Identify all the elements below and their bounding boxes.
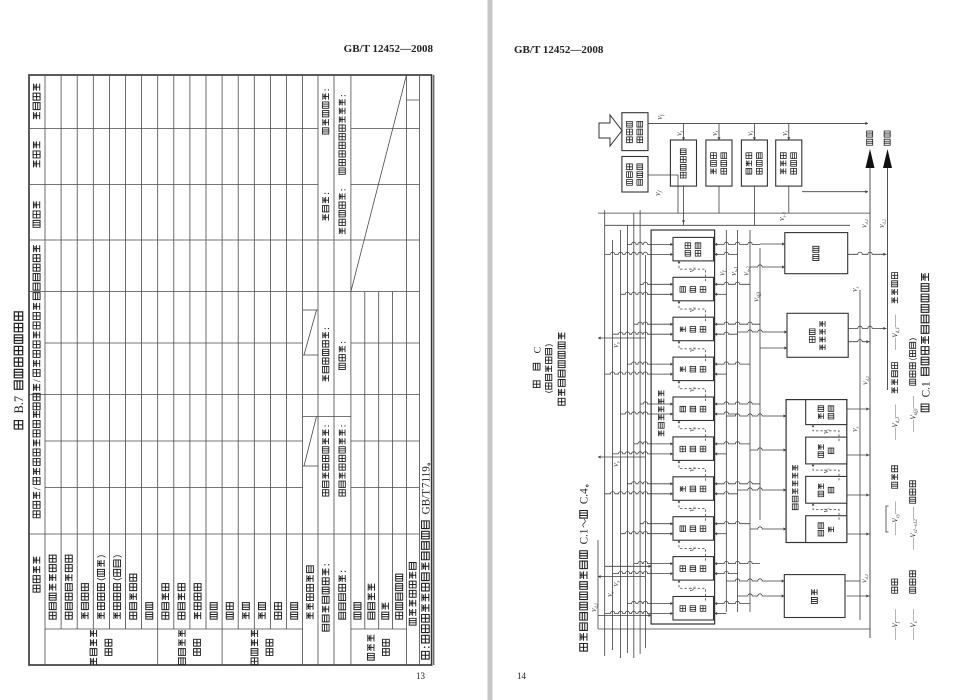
- svg-text:Vf: Vf: [713, 130, 719, 136]
- svg-text:Vf: Vf: [783, 130, 789, 136]
- svg-text:Vs: Vs: [690, 386, 696, 392]
- svg-text:/: /: [32, 487, 43, 490]
- svg-text:Vs: Vs: [690, 267, 696, 273]
- svg-text:Vs: Vs: [824, 507, 830, 513]
- svg-text:Vs: Vs: [690, 546, 696, 552]
- svg-text:Vs: Vs: [824, 429, 830, 435]
- svg-text:Vs: Vs: [690, 426, 696, 432]
- svg-text:Vs: Vs: [690, 347, 696, 353]
- svg-text:7119: 7119: [421, 466, 433, 488]
- svg-text:13: 13: [416, 671, 426, 681]
- svg-text:Vs: Vs: [853, 426, 859, 432]
- svg-text:B.7: B.7: [12, 396, 26, 414]
- svg-text:Vs: Vs: [608, 591, 614, 597]
- svg-text:14: 14: [517, 671, 527, 681]
- svg-text:C.1: C.1: [579, 529, 591, 545]
- svg-text:C: C: [532, 346, 543, 353]
- svg-text:GB/T 12452—2008: GB/T 12452—2008: [514, 44, 604, 56]
- svg-text:Vs: Vs: [690, 506, 696, 512]
- svg-text:Vs: Vs: [853, 286, 859, 292]
- svg-text:GB/T 12452—2008: GB/T 12452—2008: [344, 43, 434, 55]
- svg-text:Vs: Vs: [690, 466, 696, 472]
- svg-text:Vs: Vs: [824, 468, 830, 474]
- svg-text:Vs: Vs: [690, 307, 696, 313]
- svg-text:C.4: C.4: [579, 488, 591, 504]
- svg-text:/: /: [32, 379, 43, 382]
- svg-text:Vf: Vf: [678, 130, 684, 136]
- svg-text:Vs-3: Vs-3: [780, 212, 786, 221]
- svg-text:Vf: Vf: [748, 130, 754, 136]
- svg-text:GB/T: GB/T: [421, 489, 433, 515]
- svg-text:C.1: C.1: [920, 381, 932, 397]
- svg-text:Vs: Vs: [690, 586, 696, 592]
